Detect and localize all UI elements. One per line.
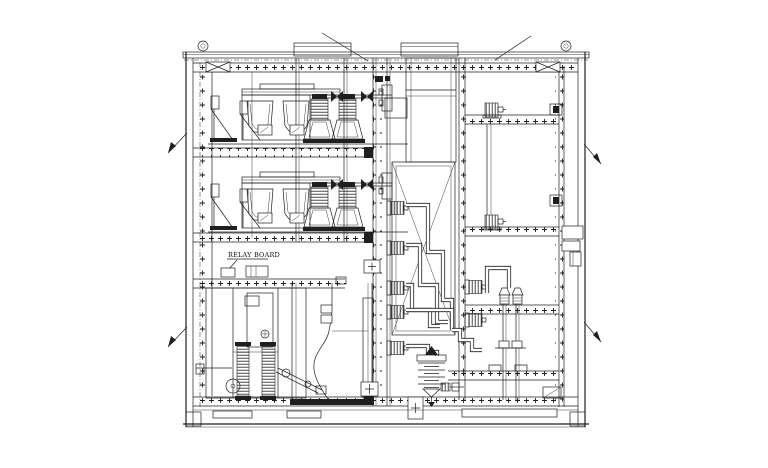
- skid-slot-1: [213, 411, 252, 418]
- partition-junction-box-upper: [364, 260, 380, 273]
- cable-termination-2: [512, 288, 523, 304]
- vent-symbol-right: [536, 62, 560, 72]
- left-wall-bolt-column: [200, 75, 209, 395]
- relay-board-right-box: [246, 266, 268, 277]
- engineering-drawing: RELAY BOARD: [0, 0, 768, 468]
- relay-board-left-box: [221, 268, 235, 277]
- door-handle: [570, 252, 581, 266]
- top-bolt-rail: [193, 63, 578, 72]
- right-rail-4: [448, 371, 559, 380]
- relay-shelf-rail: [193, 279, 346, 288]
- switchgear-section-view: RELAY BOARD: [0, 0, 768, 468]
- operating-spring-right: [260, 342, 276, 400]
- cable-clamp-1: [499, 341, 509, 348]
- right-rail-2: [465, 227, 559, 236]
- vent-symbol-left: [206, 62, 230, 72]
- cable-termination-1: [499, 288, 510, 304]
- right-rail-1: [465, 115, 559, 124]
- shelf-rail-1: [193, 147, 373, 158]
- shelf-rail-2: [193, 232, 373, 243]
- relay-board-label: RELAY BOARD: [228, 251, 280, 259]
- skid-slot-2: [287, 411, 321, 418]
- panel-right-rail: [457, 58, 466, 400]
- skid-slot-3: [462, 409, 557, 417]
- cable-clamp-2: [512, 341, 522, 348]
- arrester-coupler: [441, 383, 450, 391]
- right-rail-3: [465, 305, 559, 314]
